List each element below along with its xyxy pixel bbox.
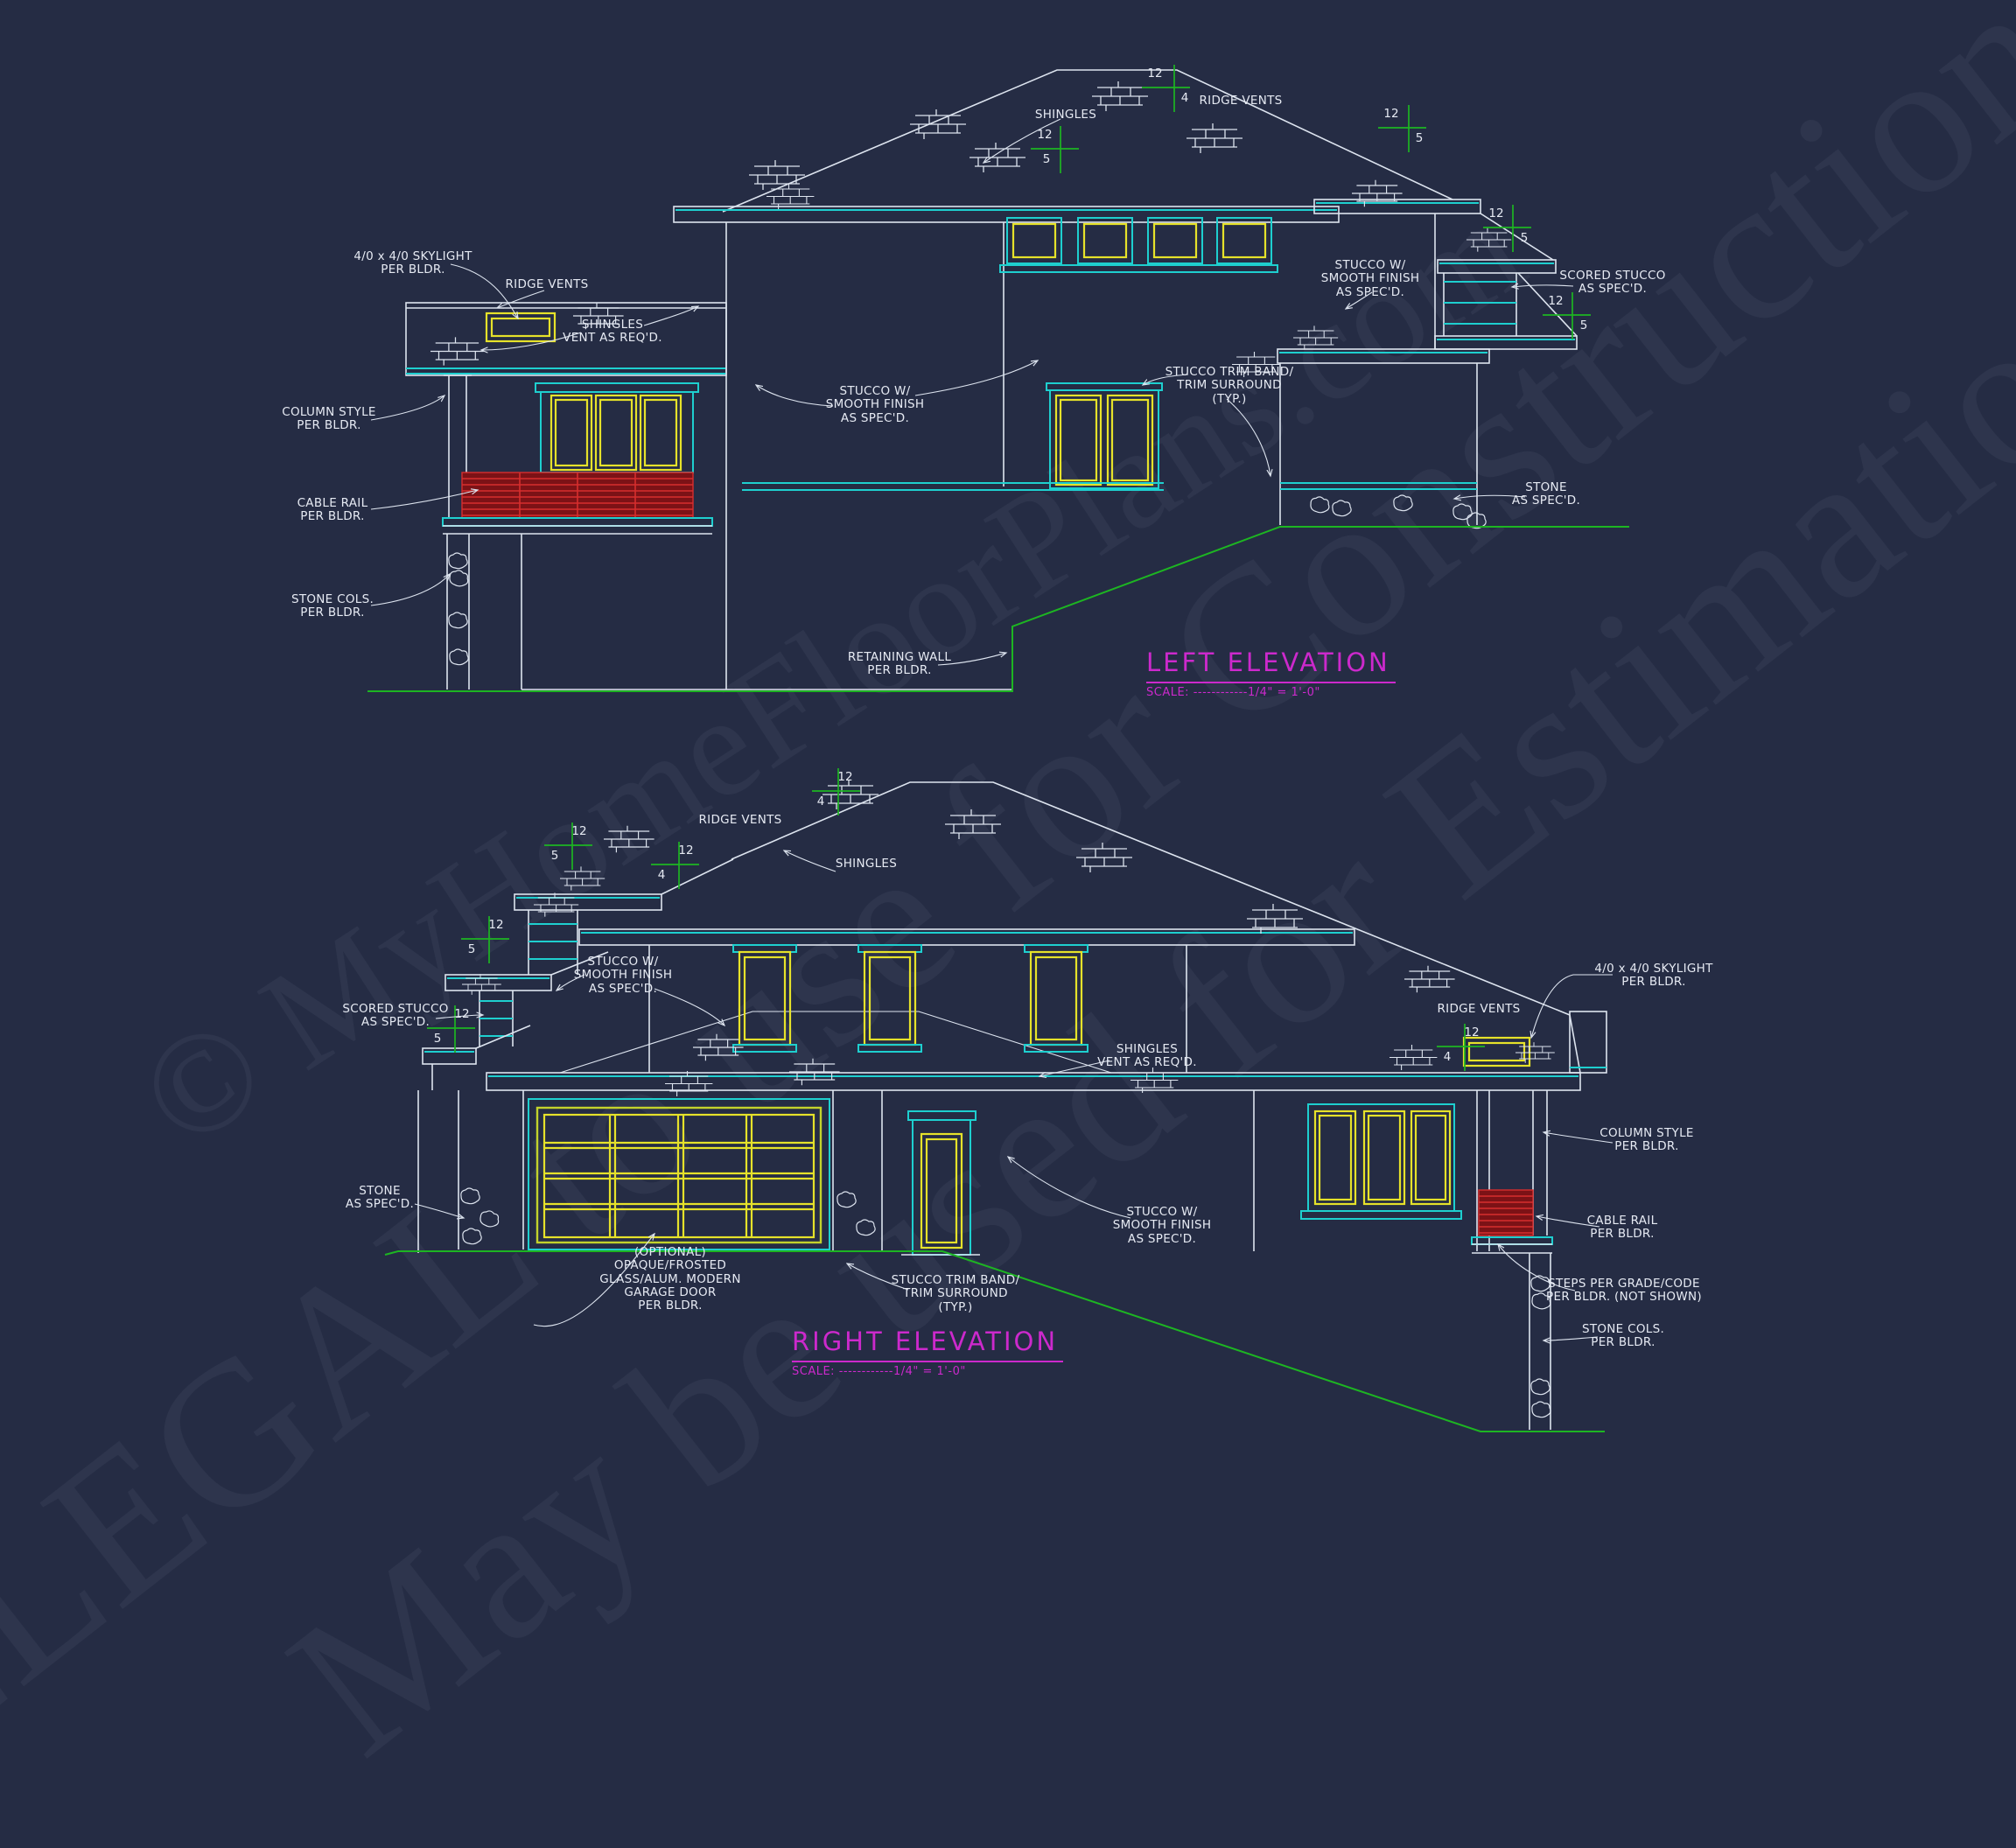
label-stone-cols-left: STONE COLS. PER BLDR. xyxy=(291,593,374,620)
left-elevation-title-block: LEFT ELEVATION SCALE: ------------1/4" =… xyxy=(1146,647,1396,699)
label-trim-band-right: STUCCO TRIM BAND/ TRIM SURROUND (TYP.) xyxy=(892,1274,1020,1314)
slope-run-s4: 5 xyxy=(1515,231,1534,245)
right-elevation-scale: SCALE: ------------1/4" = 1'-0" xyxy=(792,1365,1063,1378)
label-ridge-vents-right-side: RIDGE VENTS xyxy=(1437,1003,1520,1016)
label-stone-right: STONE AS SPEC'D. xyxy=(346,1185,414,1212)
label-stone-left: STONE AS SPEC'D. xyxy=(1512,481,1580,508)
left-elevation-title: LEFT ELEVATION xyxy=(1146,647,1396,683)
label-column-style-right: COLUMN STYLE PER BLDR. xyxy=(1599,1127,1694,1154)
right-elevation-title: RIGHT ELEVATION xyxy=(792,1326,1063,1362)
slope-run-t4: 5 xyxy=(462,942,481,956)
label-steps-right: STEPS PER GRADE/CODE PER BLDR. (NOT SHOW… xyxy=(1546,1277,1702,1305)
slope-run-t5: 5 xyxy=(428,1032,447,1046)
slope-rise-t6: 12 xyxy=(1462,1025,1481,1039)
slope-rise-t4: 12 xyxy=(486,918,506,932)
slope-rise-s4: 12 xyxy=(1487,206,1506,220)
label-column-style-left: COLUMN STYLE PER BLDR. xyxy=(282,406,376,433)
slope-run-s5: 5 xyxy=(1574,318,1593,332)
label-shingles-vent-right: SHINGLES VENT AS REQ'D. xyxy=(1097,1043,1197,1070)
label-trim-band-left: STUCCO TRIM BAND/ TRIM SURROUND (TYP.) xyxy=(1165,366,1294,406)
blueprint-page: { "watermarks": { "line1": "© MyHomeFloo… xyxy=(0,0,2016,1512)
label-scored-stucco-left: SCORED STUCCO AS SPEC'D. xyxy=(1559,269,1665,297)
slope-rise-s3: 12 xyxy=(1382,107,1401,121)
label-cable-rail-right: CABLE RAIL PER BLDR. xyxy=(1587,1214,1658,1242)
label-shingles-right: SHINGLES xyxy=(836,857,897,871)
label-ridge-vents-right: RIDGE VENTS xyxy=(698,814,781,827)
slope-rise-s1: 12 xyxy=(1145,66,1165,80)
slope-rise-t2: 12 xyxy=(570,824,589,838)
label-skylight-left: 4/0 x 4/0 SKYLIGHT PER BLDR. xyxy=(353,250,472,277)
slope-rise-t1: 12 xyxy=(836,770,855,784)
slope-run-t2: 5 xyxy=(545,849,564,863)
label-retaining-wall: RETAINING WALL PER BLDR. xyxy=(848,651,951,678)
label-cable-rail-left: CABLE RAIL PER BLDR. xyxy=(297,497,368,524)
label-ridge-vents-left-wing: RIDGE VENTS xyxy=(505,278,588,291)
left-elevation-scale: SCALE: ------------1/4" = 1'-0" xyxy=(1146,686,1396,699)
slope-run-t3: 4 xyxy=(652,868,671,882)
label-stucco-right-left: STUCCO W/ SMOOTH FINISH AS SPEC'D. xyxy=(1321,259,1420,299)
slope-rise-t5: 12 xyxy=(452,1007,472,1021)
label-stone-cols-right: STONE COLS. PER BLDR. xyxy=(1582,1323,1664,1350)
slope-run-s1: 4 xyxy=(1175,91,1194,105)
label-stucco-right-right: STUCCO W/ SMOOTH FINISH AS SPEC'D. xyxy=(1113,1206,1212,1246)
label-ridge-vents-top-left: RIDGE VENTS xyxy=(1199,94,1282,108)
label-shingles-left: SHINGLES xyxy=(1035,108,1096,122)
label-shingles-vent-left: SHINGLES VENT AS REQ'D. xyxy=(563,318,662,346)
slope-rise-s5: 12 xyxy=(1546,294,1565,308)
slope-run-s3: 5 xyxy=(1410,131,1429,145)
slope-run-t6: 4 xyxy=(1438,1050,1457,1064)
left-elevation-drawing xyxy=(367,65,1629,691)
label-stucco-center-left: STUCCO W/ SMOOTH FINISH AS SPEC'D. xyxy=(826,385,925,425)
right-elevation-title-block: RIGHT ELEVATION SCALE: ------------1/4" … xyxy=(792,1326,1063,1378)
label-garage-door: (OPTIONAL) OPAQUE/FROSTED GLASS/ALUM. MO… xyxy=(599,1246,741,1312)
label-stucco-center-right: STUCCO W/ SMOOTH FINISH AS SPEC'D. xyxy=(574,955,673,996)
slope-run-t1: 4 xyxy=(811,794,830,808)
slope-run-s2: 5 xyxy=(1037,152,1056,166)
label-scored-stucco-right: SCORED STUCCO AS SPEC'D. xyxy=(342,1003,448,1030)
slope-rise-s2: 12 xyxy=(1035,128,1054,142)
slope-rise-t3: 12 xyxy=(676,843,696,857)
label-skylight-right: 4/0 x 4/0 SKYLIGHT PER BLDR. xyxy=(1594,962,1712,990)
